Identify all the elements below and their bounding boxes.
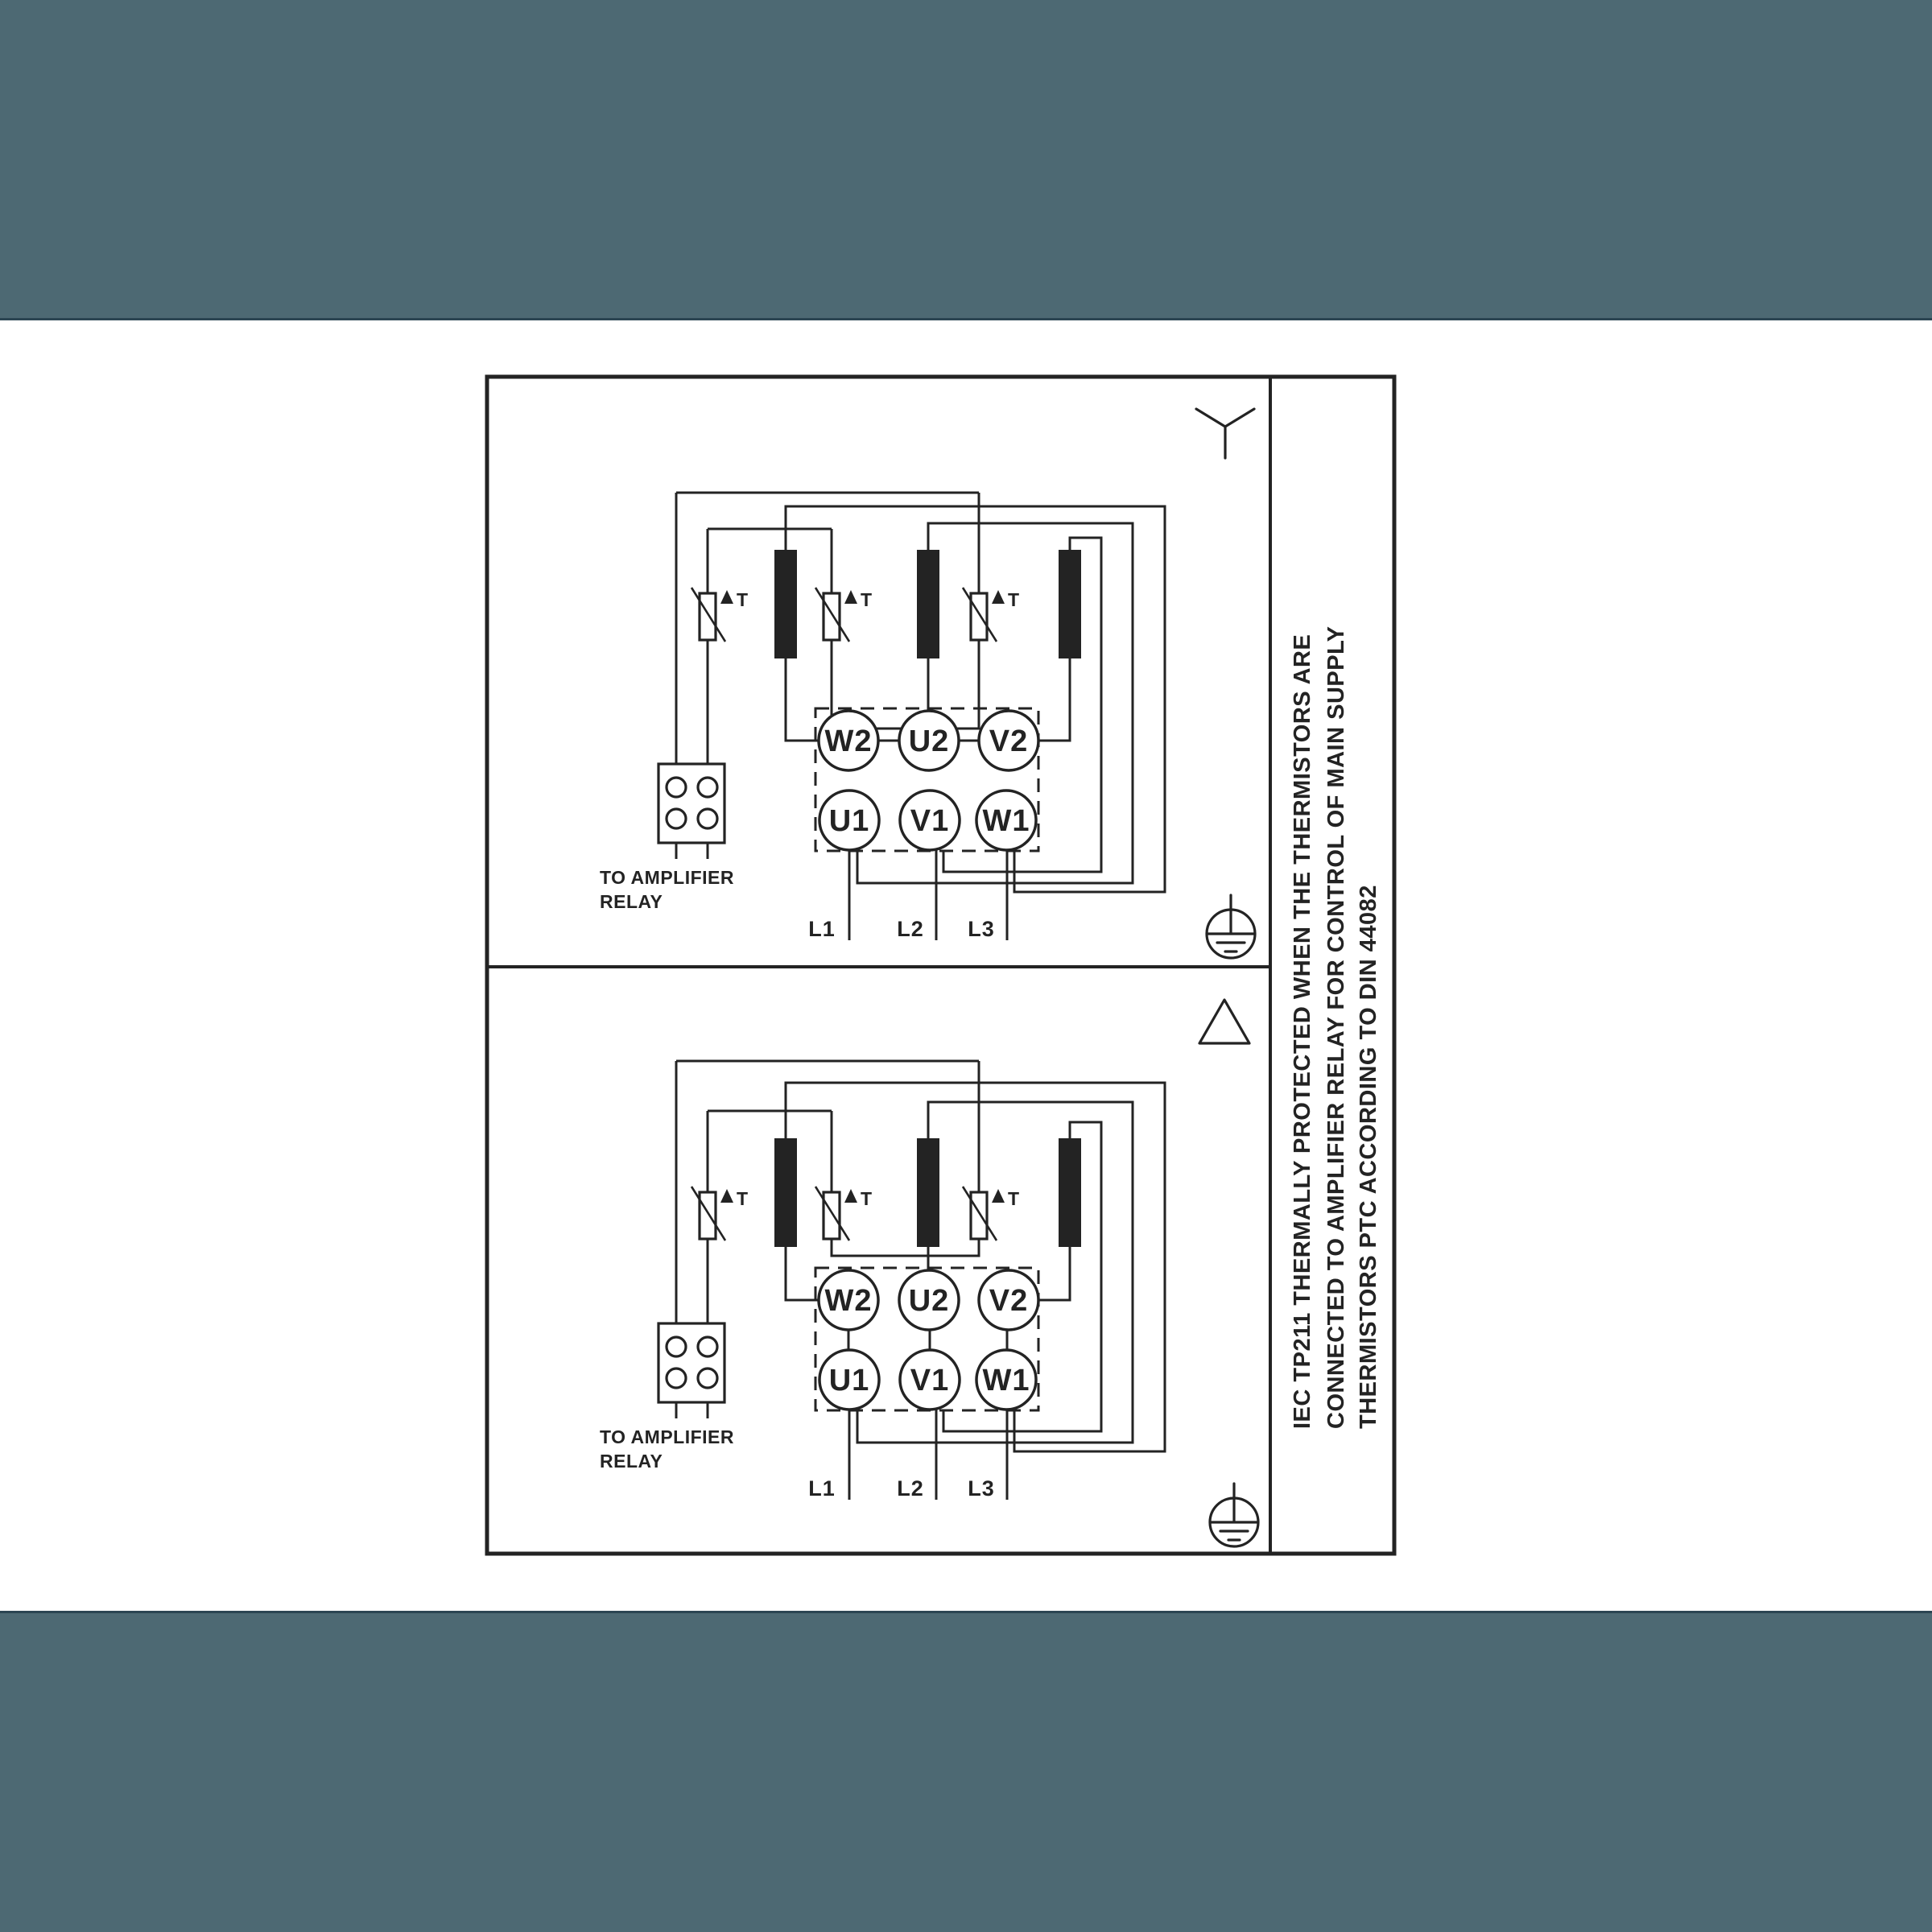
thermistors: T T T <box>691 588 1019 642</box>
thermistor-symbol <box>824 593 840 640</box>
relay-terminal <box>698 778 717 797</box>
winding-bar <box>917 550 939 658</box>
thermistor-tag: T <box>1008 589 1019 610</box>
relay-note-line1: TO AMPLIFIER <box>600 867 734 888</box>
delta-bridge-links <box>848 1330 1007 1350</box>
supply-l2: L2 <box>897 1476 924 1501</box>
terminal-label: W1 <box>983 1364 1030 1397</box>
terminal-label: V2 <box>989 724 1028 758</box>
amplifier-relay-connector: TO AMPLIFIER RELAY <box>600 1323 734 1472</box>
relay-note-line1: TO AMPLIFIER <box>600 1426 734 1447</box>
relay-terminal <box>667 1337 686 1356</box>
sidebar-note: IEC TP211 THERMALLY PROTECTED WHEN THE T… <box>1290 626 1381 1429</box>
star-panel: T T T TO AMPLIFIER RELAY <box>600 409 1255 958</box>
relay-terminal <box>698 1337 717 1356</box>
winding-bar <box>774 550 797 658</box>
sidebar-note-line2: CONNECTED TO AMPLIFIER RELAY FOR CONTROL… <box>1323 626 1349 1429</box>
ground-icon <box>1207 895 1255 958</box>
terminal-label: U1 <box>829 1364 870 1397</box>
delta-panel: T T T TO AMPLIFIER RELAY <box>600 1000 1258 1546</box>
terminal-label: U1 <box>829 804 870 838</box>
supply-l1: L1 <box>808 1476 836 1501</box>
relay-terminal <box>698 1368 717 1388</box>
ground-icon <box>1210 1484 1258 1546</box>
temperature-icon <box>992 590 1005 604</box>
thermistor-symbol <box>700 593 716 640</box>
temperature-icon <box>992 1189 1005 1203</box>
thermistor-symbol <box>971 593 987 640</box>
terminal-label: V1 <box>910 1364 949 1397</box>
temperature-icon <box>844 590 857 604</box>
supply-l3: L3 <box>968 1476 995 1501</box>
star-connection-icon <box>1196 409 1254 458</box>
relay-note-line2: RELAY <box>600 891 663 912</box>
thermistor-symbol <box>971 1192 987 1239</box>
thermistor-symbol <box>824 1192 840 1239</box>
winding-bar <box>774 1138 797 1247</box>
terminal-label: W2 <box>825 1284 873 1318</box>
thermistor-tag: T <box>1008 1188 1019 1209</box>
thermistor-tag: T <box>861 1188 872 1209</box>
terminal-board: W2 U2 V2 U1 V1 W1 <box>815 708 1038 851</box>
terminal-label: U2 <box>909 724 950 758</box>
winding-bar <box>1059 550 1081 658</box>
relay-terminal <box>667 778 686 797</box>
supply-l2: L2 <box>897 917 924 941</box>
sidebar-note-line1: IEC TP211 THERMALLY PROTECTED WHEN THE T… <box>1290 634 1315 1429</box>
temperature-icon <box>720 1189 733 1203</box>
supply-labels: L1 L2 L3 <box>808 1476 995 1501</box>
amplifier-relay-connector: TO AMPLIFIER RELAY <box>600 764 734 912</box>
relay-note-line2: RELAY <box>600 1451 663 1472</box>
delta-connection-icon <box>1199 1000 1249 1043</box>
thermistors: T T T <box>691 1187 1019 1241</box>
winding-bar <box>1059 1138 1081 1247</box>
terminal-label: W2 <box>825 724 873 758</box>
relay-terminal <box>698 809 717 828</box>
relay-terminal <box>667 809 686 828</box>
thermistor-symbol <box>700 1192 716 1239</box>
supply-l1: L1 <box>808 917 836 941</box>
thermistor-tag: T <box>737 589 748 610</box>
temperature-icon <box>844 1189 857 1203</box>
supply-l3: L3 <box>968 917 995 941</box>
winding-bar <box>917 1138 939 1247</box>
terminal-label: V2 <box>989 1284 1028 1318</box>
terminal-label: V1 <box>910 804 949 838</box>
thermistor-tag: T <box>737 1188 748 1209</box>
motor-windings <box>774 550 1081 658</box>
wiring-diagram: T T T TO AMPLIFIER RELAY <box>0 0 1932 1932</box>
terminal-label: U2 <box>909 1284 950 1318</box>
page: /* bottom bar main fill bound below via … <box>0 0 1932 1932</box>
thermistor-tag: T <box>861 589 872 610</box>
temperature-icon <box>720 590 733 604</box>
supply-labels: L1 L2 L3 <box>808 917 995 941</box>
sidebar-note-line3: THERMISTORS PTC ACCORDING TO DIN 44082 <box>1356 885 1381 1429</box>
relay-terminal <box>667 1368 686 1388</box>
terminal-board: W2 U2 V2 U1 V1 W1 <box>815 1268 1038 1410</box>
terminal-label: W1 <box>983 804 1030 838</box>
